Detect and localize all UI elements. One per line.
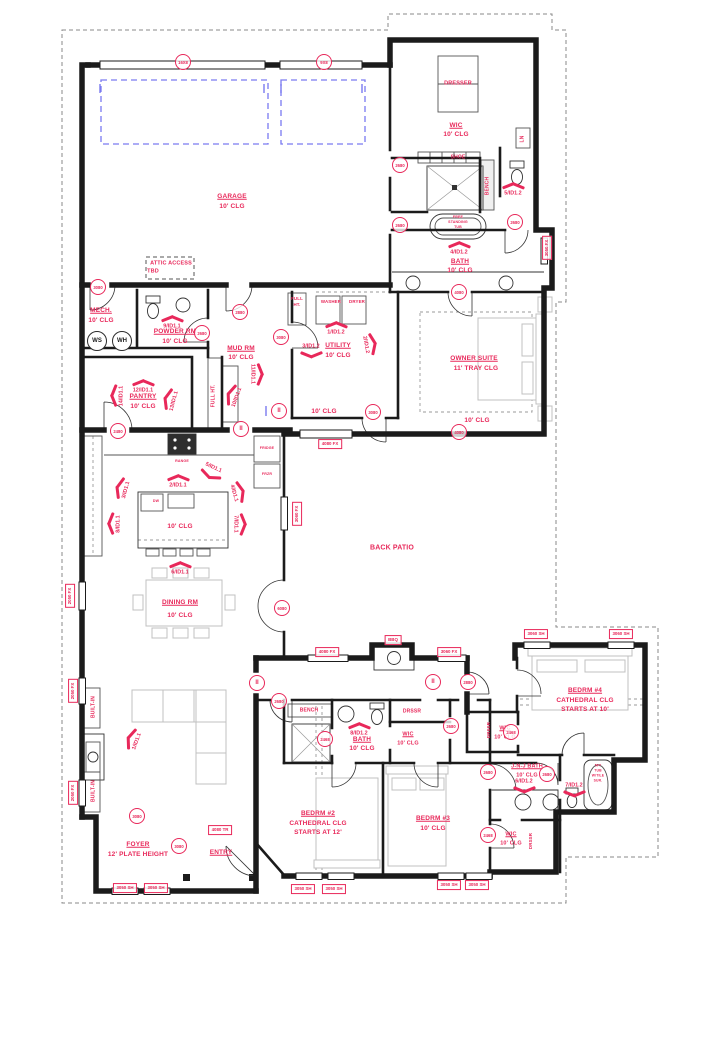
door-size-tag: II xyxy=(271,403,287,419)
finish-chevron-icon xyxy=(300,351,322,360)
plan-label: CATHEDRAL CLG xyxy=(289,821,346,828)
plan-label: DW xyxy=(153,500,159,504)
plan-label: DRYER xyxy=(349,300,365,304)
door-size-tag: 2468 xyxy=(317,731,333,747)
finish-detail-ref: 7/ID1.1 xyxy=(232,515,237,532)
plan-label: J-N-J BATH xyxy=(511,764,543,770)
plan-label: ATTIC ACCESS xyxy=(150,261,192,267)
finish-detail-marker: 7/ID1.2 xyxy=(563,783,585,798)
finish-chevron-icon xyxy=(109,385,118,407)
plan-label: 10' CLG xyxy=(167,613,192,620)
finish-chevron-icon xyxy=(106,513,115,535)
plan-label: DRSSR xyxy=(403,710,421,715)
finish-detail-marker: 11/ID1.1 xyxy=(249,363,264,385)
plan-label: BEDRM #2 xyxy=(301,811,335,818)
window-size-tag: 3050 SH xyxy=(144,883,168,893)
plan-label: PANTRY xyxy=(130,394,157,401)
plan-label: BATH xyxy=(353,737,371,744)
door-size-tag: 2880 xyxy=(460,674,476,690)
plan-label: DINING RM xyxy=(162,600,198,607)
plan-label: FRIDGE xyxy=(260,447,274,451)
plan-label: 10' CLG xyxy=(443,132,468,139)
window-size-tag: 3060 FX xyxy=(437,647,461,657)
plan-label: HT. xyxy=(293,303,300,307)
finish-detail-ref: 4/ID1.2 xyxy=(450,250,467,255)
finish-detail-marker: 6/ID1.1 xyxy=(169,560,191,575)
finish-detail-ref: 5/ID1.2 xyxy=(504,191,521,196)
plan-label: TUB xyxy=(454,226,462,230)
door-size-tag: 4080 xyxy=(451,284,467,300)
plan-label: RANGE xyxy=(175,460,189,464)
window-size-tag: 2050 FX xyxy=(68,679,78,703)
plan-label: BACK PATIO xyxy=(370,545,414,552)
plan-label: 10' CLG xyxy=(88,318,113,325)
door-size-tag: 2468 xyxy=(503,724,519,740)
finish-detail-ref: 11/ID1.1 xyxy=(249,364,254,384)
plan-label: BATH xyxy=(451,259,469,266)
finish-chevron-icon xyxy=(502,181,524,190)
finish-detail-ref: 1/ID1.2 xyxy=(327,330,344,335)
door-size-tag: 2680 xyxy=(271,693,287,709)
finish-detail-marker: 3/ID1.1 xyxy=(112,476,133,501)
finish-chevron-icon xyxy=(132,378,154,387)
door-size-tag: 3080 xyxy=(365,404,381,420)
plan-label: MUD RM xyxy=(227,346,255,353)
door-size-tag: 2680 xyxy=(539,766,555,782)
window-size-tag: 3060 FX xyxy=(292,502,302,526)
finish-detail-ref: 6/ID1.2 xyxy=(515,779,532,784)
finish-detail-ref: 8/ID1.1 xyxy=(116,515,121,532)
plan-label: 10' CLG xyxy=(162,339,187,346)
plan-label: TBD xyxy=(147,269,159,275)
plan-label: STARTS AT 10' xyxy=(561,707,609,714)
window-size-tag: 2050 FX xyxy=(65,584,75,608)
plan-label: FOYER xyxy=(126,842,149,849)
plan-label: DRSSR xyxy=(529,833,533,849)
finish-detail-marker: 4/ID1.2 xyxy=(448,240,470,255)
plan-label: 10' CLG xyxy=(167,524,192,531)
plan-label: DRSSR xyxy=(487,722,491,738)
plan-label: 10' CLG xyxy=(397,741,419,747)
plan-label: DRESSER xyxy=(444,81,472,87)
finish-detail-marker: 8/ID1.1 xyxy=(106,513,121,535)
plan-label: SUR. xyxy=(594,779,603,782)
annotation-layer: GARAGE10' CLGATTIC ACCESSTBDDRESSERWIC10… xyxy=(0,0,720,1046)
window-size-tag: 3050 SH xyxy=(437,880,461,890)
plan-label: OWNER SUITE xyxy=(450,356,498,363)
door-size-tag: 16X8 xyxy=(175,54,191,70)
plan-label: FULL xyxy=(291,297,303,301)
door-size-tag: 4080 xyxy=(451,424,467,440)
finish-detail-ref: 12/ID1.1 xyxy=(133,388,153,393)
window-size-tag: 3060 SH xyxy=(524,629,548,639)
finish-chevron-icon xyxy=(448,240,470,249)
finish-detail-marker: 4/ID1.1 xyxy=(228,479,249,504)
finish-detail-marker: 1/ID1.1 xyxy=(122,727,144,753)
window-size-tag: 4080 TR xyxy=(208,825,232,835)
finish-detail-ref: 8/ID1.2 xyxy=(350,731,367,736)
door-size-tag: 2468 xyxy=(480,827,496,843)
finish-chevron-icon xyxy=(167,473,189,482)
plan-label: BUILT-IN xyxy=(92,780,97,802)
door-size-tag: II xyxy=(249,675,265,691)
finish-chevron-icon xyxy=(239,513,248,535)
plan-label: 10' CLG xyxy=(228,355,253,362)
door-size-tag: 2880 xyxy=(232,304,248,320)
window-size-tag: 3050 SH xyxy=(291,884,315,894)
plan-label: SHOE xyxy=(451,156,466,161)
plan-label: POWDER RM xyxy=(154,329,197,336)
title-block: 1 FINISH PLAN - FIRST FLOOR SCALE: 3/16"… xyxy=(0,940,720,1040)
plan-label: BUILT-IN xyxy=(92,696,97,718)
door-size-tag: 3080 xyxy=(129,808,145,824)
plan-label: 10' CLG xyxy=(311,409,336,416)
window-size-tag: 3050 SH xyxy=(113,883,137,893)
finish-chevron-icon xyxy=(513,786,535,795)
plan-label: FRZR xyxy=(262,473,272,477)
finish-chevron-icon xyxy=(348,721,370,730)
plan-label: WASHER xyxy=(321,300,341,304)
plan-label: WIC xyxy=(449,123,462,130)
door-size-tag: 2680 xyxy=(194,325,210,341)
finish-detail-marker: 10/ID1.1 xyxy=(222,383,244,409)
plan-label: WIC xyxy=(505,832,516,838)
door-size-tag: 2680 xyxy=(392,217,408,233)
plan-label: 5FT xyxy=(595,764,601,767)
plan-label: 10' CLG xyxy=(349,746,374,753)
plan-label: WIC xyxy=(402,732,413,738)
plan-label: 10' CLG xyxy=(464,418,489,425)
plan-label: CATHEDRAL CLG xyxy=(556,698,613,705)
plan-label: 10' CLG xyxy=(219,204,244,211)
plan-label: 11' TRAY CLG xyxy=(454,366,499,373)
door-size-tag: 9X8 xyxy=(316,54,332,70)
plan-label: 10' CLG xyxy=(500,841,522,847)
door-size-tag: 3080 xyxy=(90,279,106,295)
plan-label: BEDRM #3 xyxy=(416,816,450,823)
finish-chevron-icon xyxy=(169,560,191,569)
door-size-tag: 2680 xyxy=(507,214,523,230)
finish-detail-marker: 13/ID1.1 xyxy=(160,387,181,412)
plan-label: W/TILE xyxy=(592,774,604,777)
finish-detail-ref: 7/ID1.2 xyxy=(565,783,582,788)
plan-label: TUB xyxy=(594,769,601,772)
window-size-tag: BBQ xyxy=(385,635,402,645)
door-size-tag: 2680 xyxy=(392,157,408,173)
equipment-tag: WS xyxy=(87,331,107,351)
finish-detail-marker: 5/ID1.2 xyxy=(502,181,524,196)
plan-label: FULL HT. xyxy=(212,385,217,408)
finish-detail-ref: 6/ID1.1 xyxy=(171,570,188,575)
plan-label: LN xyxy=(521,136,526,143)
plan-label: BENCH xyxy=(300,709,319,714)
plan-label: ENTRY xyxy=(210,850,233,857)
finish-detail-marker: 6/ID1.2 xyxy=(513,779,535,794)
door-size-tag: II xyxy=(425,674,441,690)
plan-label: 10' CLG xyxy=(420,826,445,833)
finish-detail-marker: 14/ID1.1 xyxy=(109,385,124,407)
finish-chevron-icon xyxy=(161,314,183,323)
finish-detail-marker: 3/ID1.2 xyxy=(300,344,322,359)
plan-label: BENCH xyxy=(486,177,491,196)
window-size-tag: 3060 SH xyxy=(609,629,633,639)
finish-detail-marker: 9/ID1.1 xyxy=(161,314,183,329)
window-size-tag: 2050 FX xyxy=(68,781,78,805)
finish-detail-marker: 2/ID1.1 xyxy=(167,473,189,488)
finish-detail-marker: 2/ID1.2 xyxy=(361,332,380,356)
finish-detail-marker: 12/ID1.1 xyxy=(132,378,154,393)
door-size-tag: II xyxy=(233,421,249,437)
finish-detail-ref: 2/ID1.1 xyxy=(169,483,186,488)
plan-label: 10' CLG xyxy=(447,268,472,275)
finish-chevron-icon xyxy=(325,320,347,329)
plan-label: 10' CLG xyxy=(325,353,350,360)
finish-detail-marker: 5/ID1.1 xyxy=(198,461,224,484)
door-size-tag: 2680 xyxy=(480,764,496,780)
window-size-tag: 4080 FX xyxy=(318,439,342,449)
window-size-tag: 3050 SH xyxy=(322,884,346,894)
finish-chevron-icon xyxy=(256,363,265,385)
plan-label: 10' CLG xyxy=(130,404,155,411)
finish-detail-ref: 14/ID1.1 xyxy=(119,386,124,406)
door-size-tag: 2680 xyxy=(443,718,459,734)
finish-detail-ref: 3/ID1.2 xyxy=(302,344,319,349)
finish-chevron-icon xyxy=(563,790,585,799)
plan-label: MECH. xyxy=(90,308,112,315)
finish-detail-marker: 7/ID1.1 xyxy=(232,513,247,535)
equipment-tag: WH xyxy=(112,331,132,351)
plan-label: GARAGE xyxy=(217,194,246,201)
finish-detail-ref: 9/ID1.1 xyxy=(163,324,180,329)
door-size-tag: 6080 xyxy=(274,600,290,616)
door-size-tag: 2480 xyxy=(110,423,126,439)
window-size-tag: 4080 FX xyxy=(315,647,339,657)
door-size-tag: 3080 xyxy=(171,838,187,854)
window-size-tag: 3050 SH xyxy=(465,880,489,890)
plan-label: 12' PLATE HEIGHT xyxy=(108,852,168,859)
finish-detail-marker: 1/ID1.2 xyxy=(325,320,347,335)
plan-label: BEDRM #4 xyxy=(568,688,602,695)
finish-plan-sheet: GARAGE10' CLGATTIC ACCESSTBDDRESSERWIC10… xyxy=(0,0,720,1046)
plan-label: UTILITY xyxy=(325,343,351,350)
window-size-tag: 3050 FX xyxy=(542,236,552,260)
plan-label: STARTS AT 12' xyxy=(294,830,342,837)
door-size-tag: 3080 xyxy=(273,329,289,345)
finish-detail-marker: 8/ID1.2 xyxy=(348,721,370,736)
